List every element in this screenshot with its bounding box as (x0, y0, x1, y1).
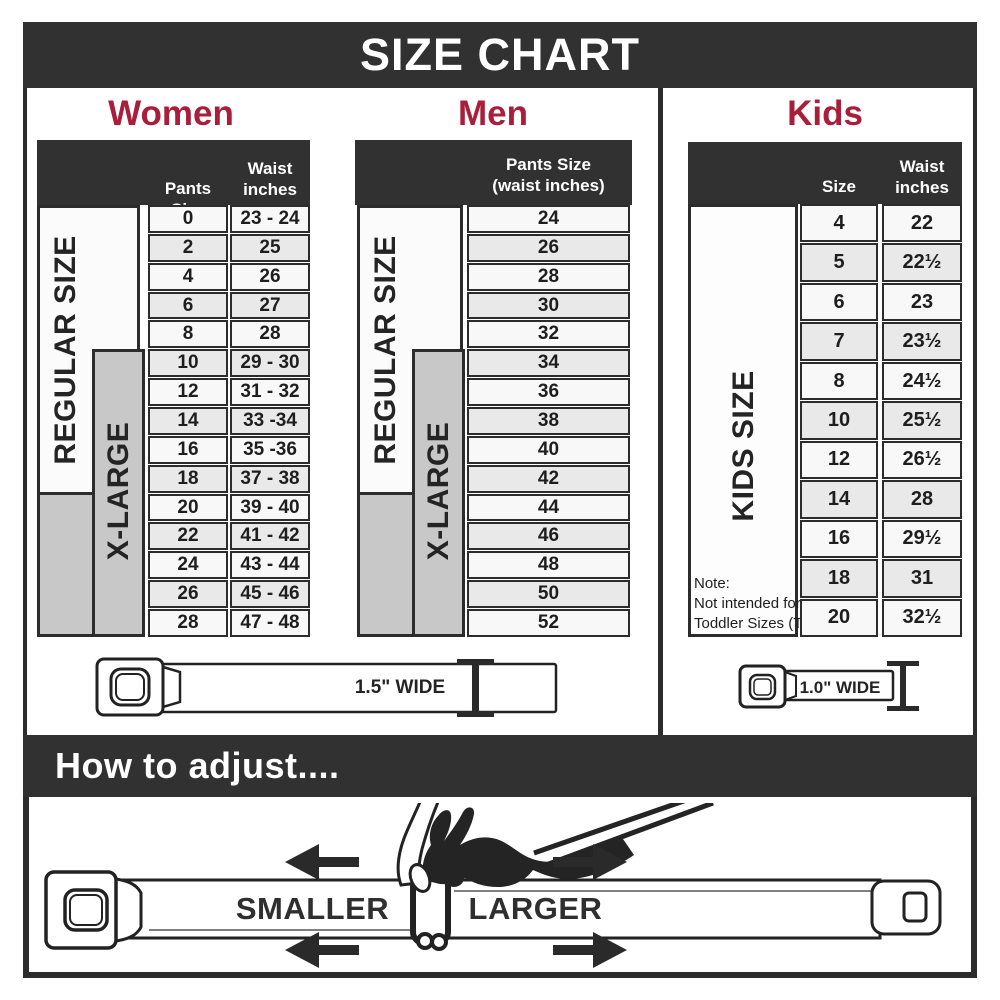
size-cell: 50 (467, 580, 630, 608)
size-cell: 26 (148, 580, 228, 608)
table-row: 10 25½ (800, 401, 962, 439)
waist-cell: 37 - 38 (230, 465, 310, 493)
size-cell: 6 (800, 283, 878, 321)
kids-note: Note: Not intended for Toddler Sizes (T) (694, 574, 807, 634)
size-chart-page: SIZE CHART Women Men Kids Pants Size Wai… (0, 0, 1000, 1000)
table-row: 5 22½ (800, 243, 962, 281)
waist-cell: 23½ (882, 322, 962, 360)
table-row: 24 (467, 205, 630, 233)
waist-cell: 35 -36 (230, 436, 310, 464)
size-cell: 22 (148, 522, 228, 550)
waist-cell: 43 - 44 (230, 551, 310, 579)
waist-cell: 23 - 24 (230, 205, 310, 233)
table-row: 24 43 - 44 (148, 551, 310, 579)
kids-waist-column-header: Waist inches (882, 156, 962, 199)
size-cell: 10 (800, 401, 878, 439)
waist-cell: 22½ (882, 243, 962, 281)
table-row: 34 (467, 349, 630, 377)
men-size-column-header: Pants Size (waist inches) (467, 154, 630, 197)
table-row: 8 24½ (800, 362, 962, 400)
women-regular-size-label: REGULAR SIZE (49, 235, 83, 464)
table-row: 18 37 - 38 (148, 465, 310, 493)
size-cell: 46 (467, 522, 630, 550)
kids-size-label: KIDS SIZE (727, 370, 761, 521)
kids-heading: Kids (735, 94, 915, 134)
table-row: 16 29½ (800, 520, 962, 558)
size-cell: 14 (800, 480, 878, 518)
size-cell: 20 (148, 494, 228, 522)
waist-cell: 31 (882, 559, 962, 597)
waist-cell: 28 (230, 320, 310, 348)
waist-cell: 25 (230, 234, 310, 262)
buckle-wing (116, 879, 141, 941)
table-row: 30 (467, 292, 630, 320)
table-row: 20 32½ (800, 599, 962, 637)
how-to-adjust-heading: How to adjust.... (55, 745, 340, 787)
waist-cell: 41 - 42 (230, 522, 310, 550)
size-cell: 38 (467, 407, 630, 435)
table-row: 32 (467, 320, 630, 348)
kids-belt-width-label: 1.0" WIDE (790, 678, 890, 698)
table-row: 12 31 - 32 (148, 378, 310, 406)
page-title: SIZE CHART (360, 29, 640, 81)
table-row: 40 (467, 436, 630, 464)
how-to-adjust-band: How to adjust.... (23, 735, 977, 797)
size-cell: 4 (800, 204, 878, 242)
size-cell: 28 (467, 263, 630, 291)
smaller-label: SMALLER (235, 891, 390, 927)
table-row: 8 28 (148, 320, 310, 348)
table-row: 46 (467, 522, 630, 550)
table-row: 36 (467, 378, 630, 406)
size-cell: 28 (148, 609, 228, 637)
men-regular-size-label: REGULAR SIZE (369, 235, 403, 464)
women-waist-column-header: Waist inches (230, 158, 310, 201)
waist-cell: 25½ (882, 401, 962, 439)
size-cell: 48 (467, 551, 630, 579)
size-cell: 32 (467, 320, 630, 348)
table-row: 6 27 (148, 292, 310, 320)
table-row: 18 31 (800, 559, 962, 597)
women-xlarge-label: X-LARGE (102, 422, 136, 561)
table-row: 50 (467, 580, 630, 608)
size-cell: 8 (800, 362, 878, 400)
adjust-diagram (29, 803, 971, 971)
size-cell: 18 (148, 465, 228, 493)
table-row: 14 28 (800, 480, 962, 518)
waist-cell: 28 (882, 480, 962, 518)
table-row: 20 39 - 40 (148, 494, 310, 522)
waist-cell: 33 -34 (230, 407, 310, 435)
kids-table-rows: 4 22 5 22½ 6 23 7 23½ 8 24½ 10 25½ 12 26… (800, 204, 962, 637)
waist-cell: 39 - 40 (230, 494, 310, 522)
size-cell: 16 (800, 520, 878, 558)
women-heading: Women (81, 94, 261, 134)
size-cell: 5 (800, 243, 878, 281)
table-row: 12 26½ (800, 441, 962, 479)
size-cell: 52 (467, 609, 630, 637)
waist-cell: 26½ (882, 441, 962, 479)
table-row: 16 35 -36 (148, 436, 310, 464)
table-row: 14 33 -34 (148, 407, 310, 435)
table-row: 44 (467, 494, 630, 522)
table-row: 26 45 - 46 (148, 580, 310, 608)
size-cell: 34 (467, 349, 630, 377)
women-table-rows: 0 23 - 24 2 25 4 26 6 27 8 28 10 29 - 30… (148, 205, 310, 637)
size-cell: 36 (467, 378, 630, 406)
size-cell: 40 (467, 436, 630, 464)
size-cell: 42 (467, 465, 630, 493)
size-cell: 12 (800, 441, 878, 479)
waist-cell: 24½ (882, 362, 962, 400)
size-cell: 18 (800, 559, 878, 597)
waist-cell: 22 (882, 204, 962, 242)
table-row: 42 (467, 465, 630, 493)
table-row: 0 23 - 24 (148, 205, 310, 233)
waist-cell: 29½ (882, 520, 962, 558)
size-cell: 20 (800, 599, 878, 637)
size-cell: 16 (148, 436, 228, 464)
size-cell: 24 (467, 205, 630, 233)
table-row: 10 29 - 30 (148, 349, 310, 377)
table-row: 52 (467, 609, 630, 637)
waist-cell: 45 - 46 (230, 580, 310, 608)
table-row: 2 25 (148, 234, 310, 262)
size-cell: 26 (467, 234, 630, 262)
size-cell: 7 (800, 322, 878, 360)
men-table-rows: 24 26 28 30 32 34 36 38 40 42 44 46 48 5… (467, 205, 630, 637)
table-row: 28 47 - 48 (148, 609, 310, 637)
size-cell: 8 (148, 320, 228, 348)
waist-cell: 23 (882, 283, 962, 321)
title-banner: SIZE CHART (23, 22, 977, 88)
men-heading: Men (403, 94, 583, 134)
size-cell: 12 (148, 378, 228, 406)
men-kids-divider (658, 88, 663, 735)
size-cell: 4 (148, 263, 228, 291)
size-cell: 6 (148, 292, 228, 320)
waist-cell: 26 (230, 263, 310, 291)
waist-cell: 47 - 48 (230, 609, 310, 637)
size-cell: 24 (148, 551, 228, 579)
size-cell: 10 (148, 349, 228, 377)
table-row: 4 22 (800, 204, 962, 242)
adult-belt-width-label: 1.5" WIDE (345, 677, 455, 699)
size-cell: 0 (148, 205, 228, 233)
table-row: 38 (467, 407, 630, 435)
table-row: 6 23 (800, 283, 962, 321)
buckle-wing (163, 667, 180, 707)
adult-belt-illustration (90, 655, 570, 730)
table-row: 26 (467, 234, 630, 262)
table-row: 4 26 (148, 263, 310, 291)
size-cell: 14 (148, 407, 228, 435)
size-cell: 44 (467, 494, 630, 522)
size-cell: 30 (467, 292, 630, 320)
larger-label: LARGER (458, 891, 613, 927)
men-xlarge-label: X-LARGE (422, 422, 456, 561)
waist-cell: 27 (230, 292, 310, 320)
table-row: 22 41 - 42 (148, 522, 310, 550)
waist-cell: 29 - 30 (230, 349, 310, 377)
waist-cell: 31 - 32 (230, 378, 310, 406)
table-row: 28 (467, 263, 630, 291)
kids-size-column-header: Size (800, 176, 878, 197)
waist-cell: 32½ (882, 599, 962, 637)
table-row: 48 (467, 551, 630, 579)
size-cell: 2 (148, 234, 228, 262)
table-row: 7 23½ (800, 322, 962, 360)
